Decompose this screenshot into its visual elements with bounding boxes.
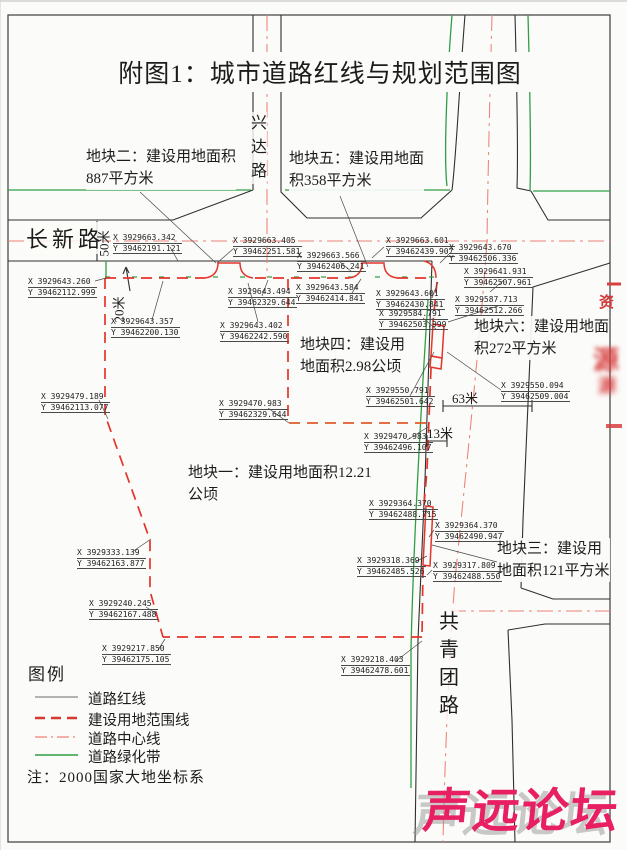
stamp-blob-fragment-2: 源 (598, 372, 616, 398)
forum-watermark: 声远论坛 (420, 772, 623, 841)
parcel-label-1: 地块一：建设用地面积12.21 公顷 (188, 462, 372, 506)
scan-edge-left (0, 0, 1, 850)
road-label-gongqingtuan: 共 青 团 路 (439, 608, 459, 720)
dimension-63m: 63米 (452, 388, 478, 407)
legend-item-road-red-line: 道路红线 (88, 688, 146, 709)
parcel-label-1-line1: 地块一：建设用地面积12.21 (188, 462, 372, 484)
parcel-label-5-line1: 地块五：建设用地面 (289, 148, 424, 170)
parcel-label-6-line1: 地块六：建设用地面 (474, 316, 609, 338)
coordinate-label: X 3929333.139Y 39462163.877 (77, 548, 146, 569)
coordinate-label: X 3929643.670Y 39462506.336 (449, 243, 518, 264)
parcel-label-1-line2: 公顷 (188, 484, 372, 506)
road-label-xingda-char: 路 (251, 160, 267, 184)
coordinate-label: X 3929663.601Y 39462439.907 (386, 236, 455, 257)
legend-title: 图例 (28, 660, 66, 685)
parcel-label-5: 地块五：建设用地面 积358平方米 (289, 148, 424, 192)
coordinate-label: X 3929470.983Y 39462329.644 (219, 399, 288, 420)
road-label-gongqingtuan-char: 路 (439, 692, 459, 720)
parcel-label-5-line2: 积358平方米 (289, 170, 424, 192)
coordinate-label: X 3929584.791Y 39462503.999 (379, 309, 448, 330)
coordinate-label: X 3929643.584Y 39462414.841 (296, 283, 365, 304)
parcel-label-4: 地块四：建设用 地面积2.98公顷 (300, 334, 405, 378)
coordinate-label: X 3929641.931Y 39462507.961 (464, 267, 533, 288)
coordinate-label: X 3929364.370Y 39462488.715 (369, 499, 438, 520)
coordinate-label: X 3929663.342Y 39462191.121 (113, 233, 182, 254)
coordinate-label: X 3929643.601Y 39462430.841 (376, 289, 445, 310)
parcel-label-6: 地块六：建设用地面 积272平方米 (474, 316, 609, 360)
coordinate-label: X 3929470.983Y 39462496.107 (364, 432, 433, 453)
coordinate-label: X 3929643.402Y 39462242.590 (220, 321, 289, 342)
coordinate-label: X 3929643.494Y 39462329.644 (228, 287, 297, 308)
coordinate-label: X 3929663.405Y 39462251.581 (233, 236, 302, 257)
parcel-label-3-line1: 地块三：建设用 (497, 538, 610, 560)
parcel-label-3-line2: 地面积121平方米 (497, 560, 610, 582)
dimension-50m: 50米 (94, 226, 113, 262)
scan-edge-top (0, 0, 627, 2)
legend-item-construction-land-boundary: 建设用地范围线 (88, 709, 190, 730)
coordinate-label: X 3929550.094Y 39462509.004 (501, 381, 570, 402)
coordinate-label: X 3929587.713Y 39462512.266 (455, 295, 524, 316)
coordinate-label: X 3929317.809Y 39462488.550 (433, 561, 502, 582)
coordinate-label: X 3929643.260Y 39462112.999 (28, 277, 97, 298)
coordinate-label: X 3929240.245Y 39462167.488 (89, 599, 158, 620)
road-label-gongqingtuan-char: 共 (439, 608, 459, 636)
coordinate-label: X 3929643.357Y 39462200.130 (111, 317, 180, 338)
road-label-gongqingtuan-char: 青 (439, 636, 459, 664)
parcel-label-4-line1: 地块四：建设用 (300, 334, 405, 356)
road-label-xingda-char: 兴 (251, 112, 267, 136)
coordinate-label: X 3929663.566Y 39462406.241 (297, 251, 366, 272)
parcel-label-3: 地块三：建设用 地面积121平方米 (497, 538, 610, 582)
legend-item-green-belt: 道路绿化带 (88, 746, 161, 767)
coordinate-label: X 3929218.403Y 39462478.601 (341, 655, 410, 676)
coordinate-label: X 3929217.850Y 39462175.105 (102, 644, 171, 665)
parcel-label-4-line2: 地面积2.98公顷 (300, 356, 405, 378)
stamp-text-fragment: 资 (599, 291, 614, 312)
coordinate-label: X 3929479.189Y 39462113.077 (41, 392, 110, 413)
road-label-xingda: 兴 达 路 (251, 112, 267, 184)
coordinate-label: X 3929550.791Y 39462501.642 (366, 386, 435, 407)
coordinate-label: X 3929364.370Y 39462490.947 (435, 521, 504, 542)
coordinate-label: X 3929318.369Y 39462485.526 (357, 556, 426, 577)
parcel-label-2-line1: 地块二：建设用地面积 (86, 146, 236, 168)
planning-map-page: 附图1：城市道路红线与规划范围图 长新路 兴 达 路 共 青 团 路 地块二：建… (0, 0, 627, 850)
road-label-gongqingtuan-char: 团 (439, 664, 459, 692)
road-label-xingda-char: 达 (251, 136, 267, 160)
parcel-label-6-line2: 积272平方米 (474, 338, 609, 360)
road-label-changxin: 长新路 (26, 222, 104, 254)
parcel-label-2: 地块二：建设用地面积 887平方米 (86, 146, 236, 190)
coordinate-system-note: 注：2000国家大地坐标系 (27, 766, 205, 787)
parcel-label-2-line2: 887平方米 (86, 168, 236, 190)
page-title: 附图1：城市道路红线与规划范围图 (97, 52, 543, 92)
